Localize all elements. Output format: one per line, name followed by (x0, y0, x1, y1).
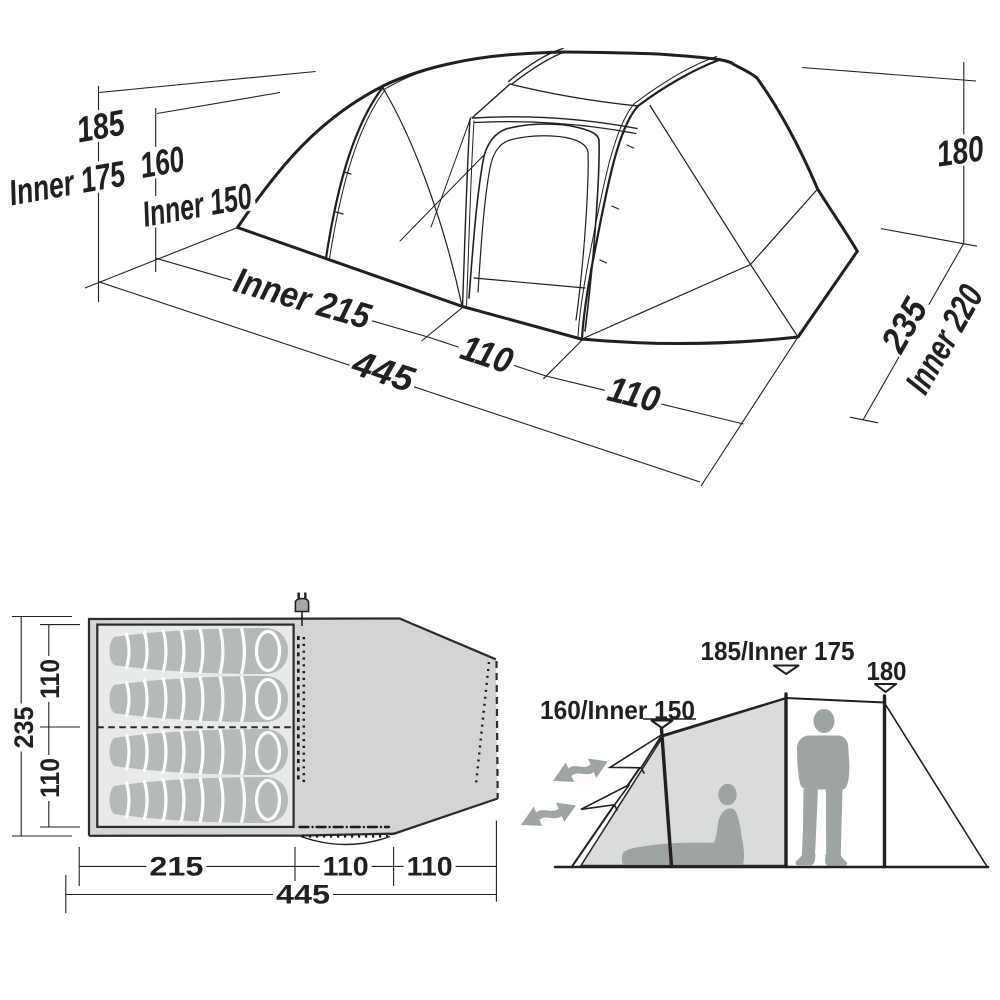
svg-text:160: 160 (137, 138, 187, 186)
svg-text:215: 215 (149, 851, 203, 881)
svg-text:445: 445 (276, 880, 330, 910)
svg-text:110: 110 (407, 851, 453, 881)
svg-text:180: 180 (867, 656, 907, 686)
svg-text:185: 185 (73, 102, 128, 151)
svg-text:110: 110 (35, 758, 65, 798)
svg-text:110: 110 (323, 851, 369, 881)
svg-text:235: 235 (9, 707, 39, 749)
svg-text:185/Inner 175: 185/Inner 175 (701, 636, 855, 666)
svg-text:180: 180 (934, 127, 986, 174)
svg-text:110: 110 (35, 659, 65, 699)
